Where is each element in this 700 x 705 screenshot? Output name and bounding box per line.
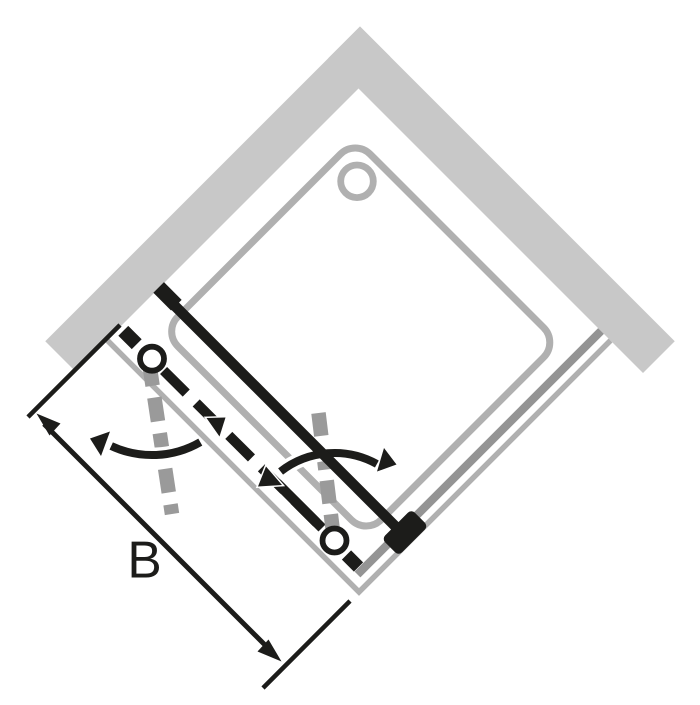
svg-text:B: B bbox=[127, 531, 161, 589]
